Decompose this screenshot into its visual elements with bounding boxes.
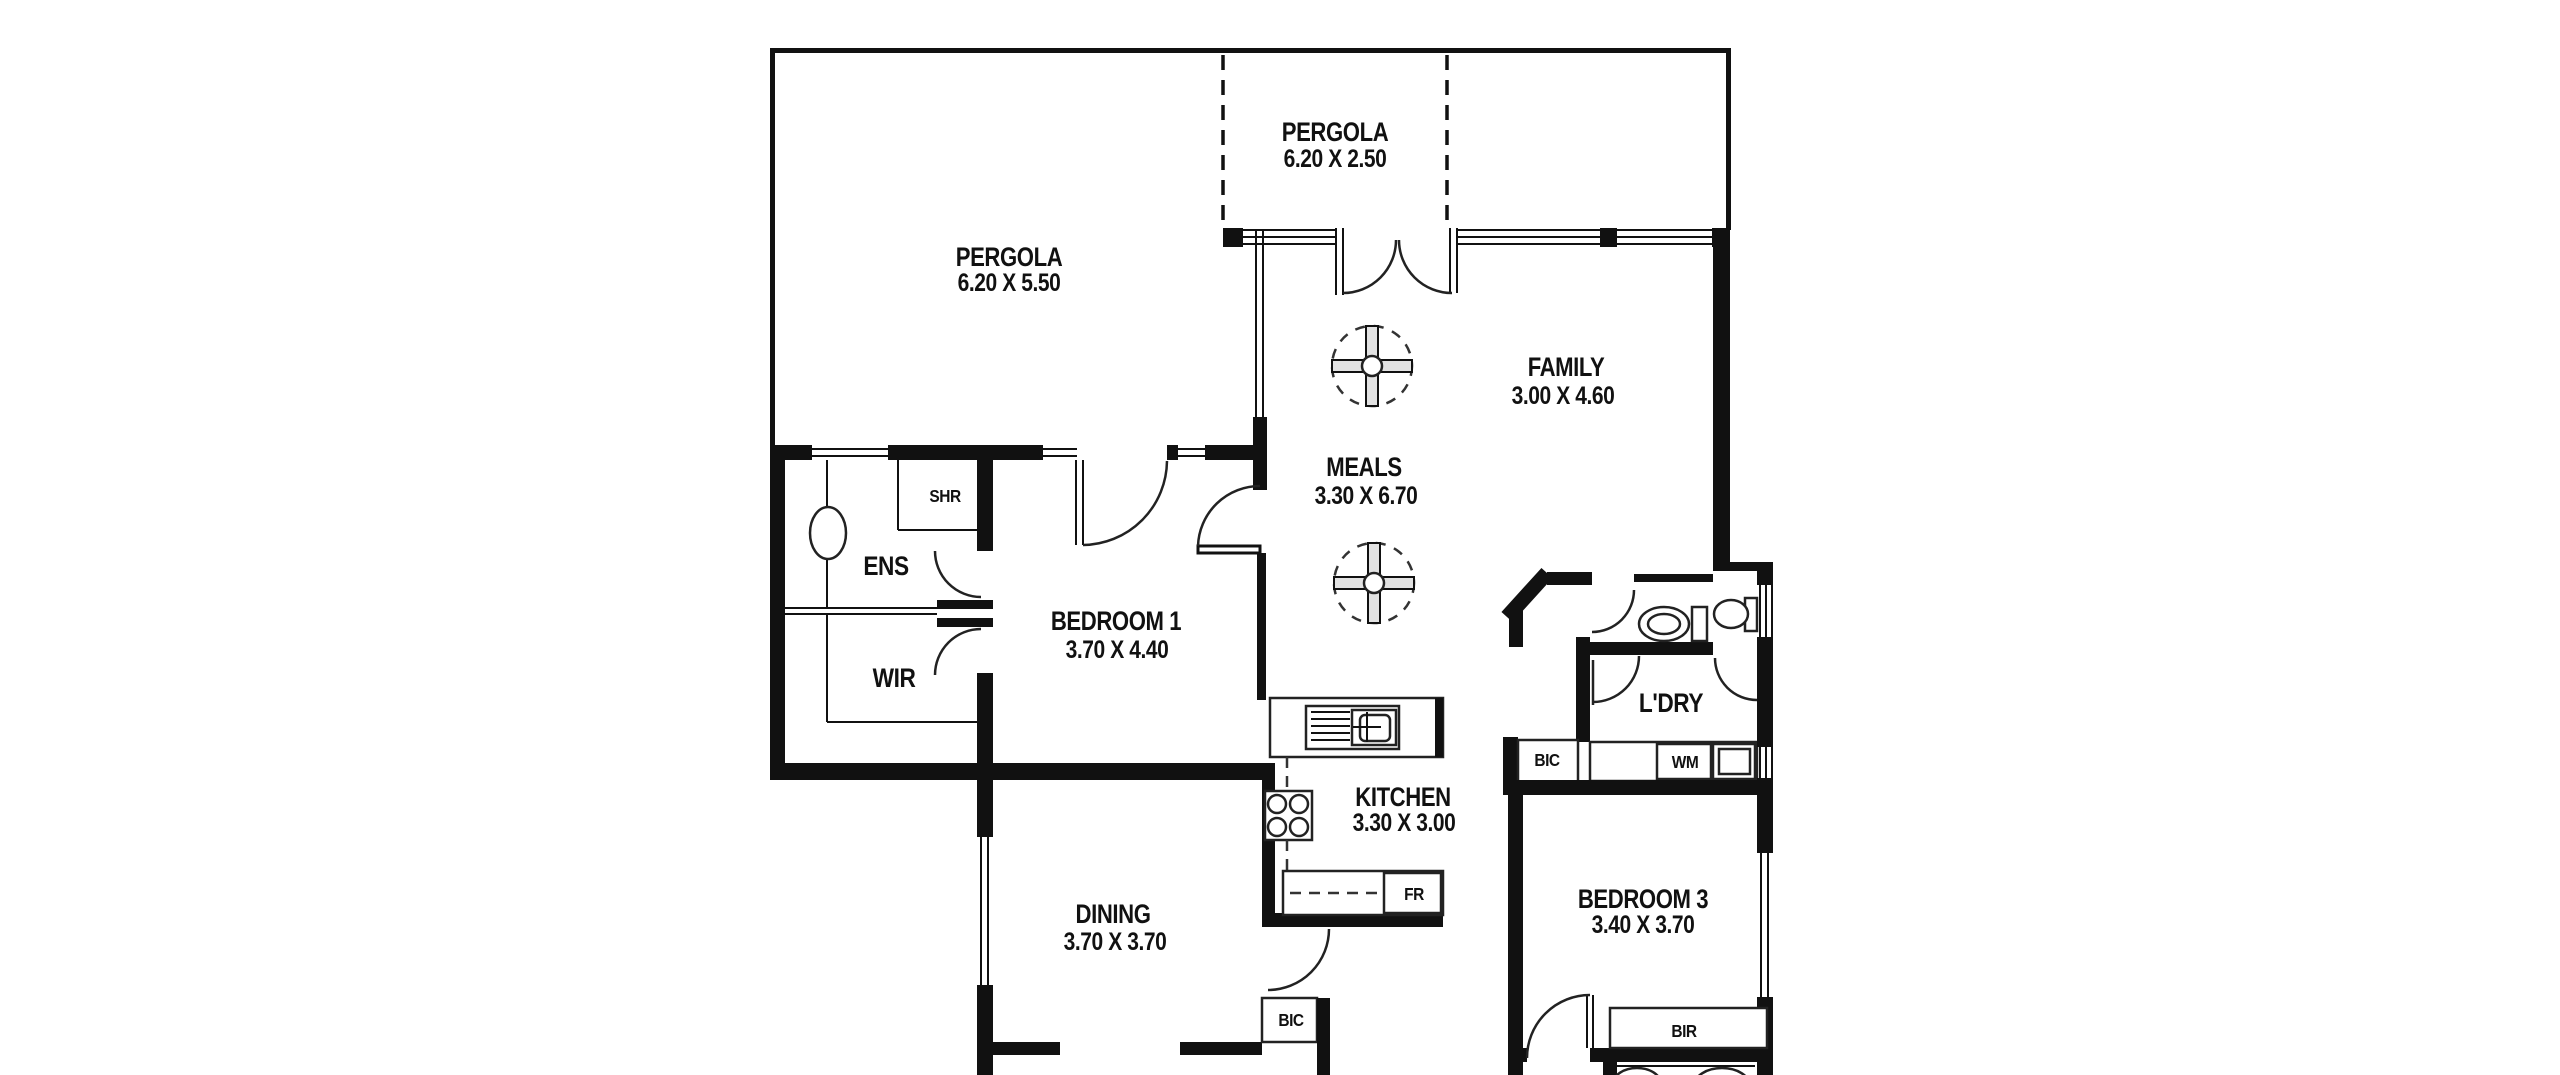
label-bic-hall: BIC	[1534, 750, 1560, 770]
room-label-ens: ENS	[863, 551, 908, 581]
wc-toilet	[1639, 607, 1707, 641]
room-label-bedroom1: BEDROOM 1	[1051, 607, 1182, 637]
cutoff-room-below	[1603, 1062, 1755, 1075]
bedroom1-window	[1178, 449, 1205, 456]
ens-wir-block	[770, 445, 1267, 780]
label-bic-rear: BIC	[1278, 1010, 1304, 1030]
ens-toilet	[810, 507, 846, 559]
laundry-door	[1593, 656, 1639, 705]
north-wall	[1223, 228, 1730, 295]
room-dims-pergola-rear: 6.20 X 2.50	[1284, 144, 1387, 172]
window-band	[1243, 230, 1712, 244]
bedroom3-door	[1527, 995, 1593, 1058]
room-dims-bedroom3: 3.40 X 3.70	[1592, 910, 1695, 938]
east-wall	[1757, 562, 1773, 1075]
family-east-wall	[1713, 230, 1730, 563]
wir-door	[935, 629, 981, 675]
back-door	[1715, 658, 1757, 700]
ens-door	[935, 551, 981, 597]
room-label-ldry: L'DRY	[1639, 688, 1704, 718]
wc-basin	[1714, 598, 1757, 631]
label-bir: BIR	[1671, 1021, 1697, 1041]
laundry-window	[1760, 747, 1772, 778]
floor-plan-page: PERGOLA 6.20 X 5.50 PERGOLA 6.20 X 2.50 …	[0, 0, 2560, 1075]
hall-door	[1268, 929, 1329, 990]
ens-wir-divider	[785, 608, 937, 614]
meals-door	[1198, 486, 1260, 553]
room-dims-family: 3.00 X 4.60	[1512, 381, 1615, 409]
meals-window	[1256, 230, 1263, 417]
label-wm: WM	[1672, 752, 1699, 772]
ceiling-fan	[1334, 543, 1414, 623]
label-fr: FR	[1404, 884, 1424, 904]
french-doors	[1336, 228, 1457, 295]
room-label-meals: MEALS	[1326, 453, 1401, 483]
room-dims-pergola-main: 6.20 X 5.50	[958, 268, 1061, 296]
bedroom1-door	[1076, 460, 1167, 545]
meals-west-wall	[1198, 230, 1267, 700]
bedroom3-window	[1761, 853, 1768, 997]
room-dims-bedroom1: 3.70 X 4.40	[1066, 635, 1169, 663]
wc-door	[1592, 590, 1634, 632]
room-dims-meals: 3.30 X 6.70	[1315, 481, 1418, 509]
room-label-dining: DINING	[1076, 900, 1151, 930]
room-label-pergola-rear: PERGOLA	[1282, 118, 1389, 148]
room-label-wir: WIR	[873, 663, 916, 693]
floor-plan-canvas: PERGOLA 6.20 X 5.50 PERGOLA 6.20 X 2.50 …	[0, 0, 2560, 1075]
dining-window	[981, 837, 988, 985]
ens-window	[812, 449, 888, 456]
room-label-family: FAMILY	[1528, 353, 1606, 383]
ceiling-fan	[1332, 326, 1412, 406]
room-dims-dining: 3.70 X 3.70	[1064, 927, 1167, 955]
room-label-shr: SHR	[929, 486, 961, 506]
bedroom1-window	[1043, 449, 1077, 456]
room-dims-kitchen: 3.30 X 3.00	[1353, 808, 1456, 836]
wc-window	[1760, 585, 1772, 637]
